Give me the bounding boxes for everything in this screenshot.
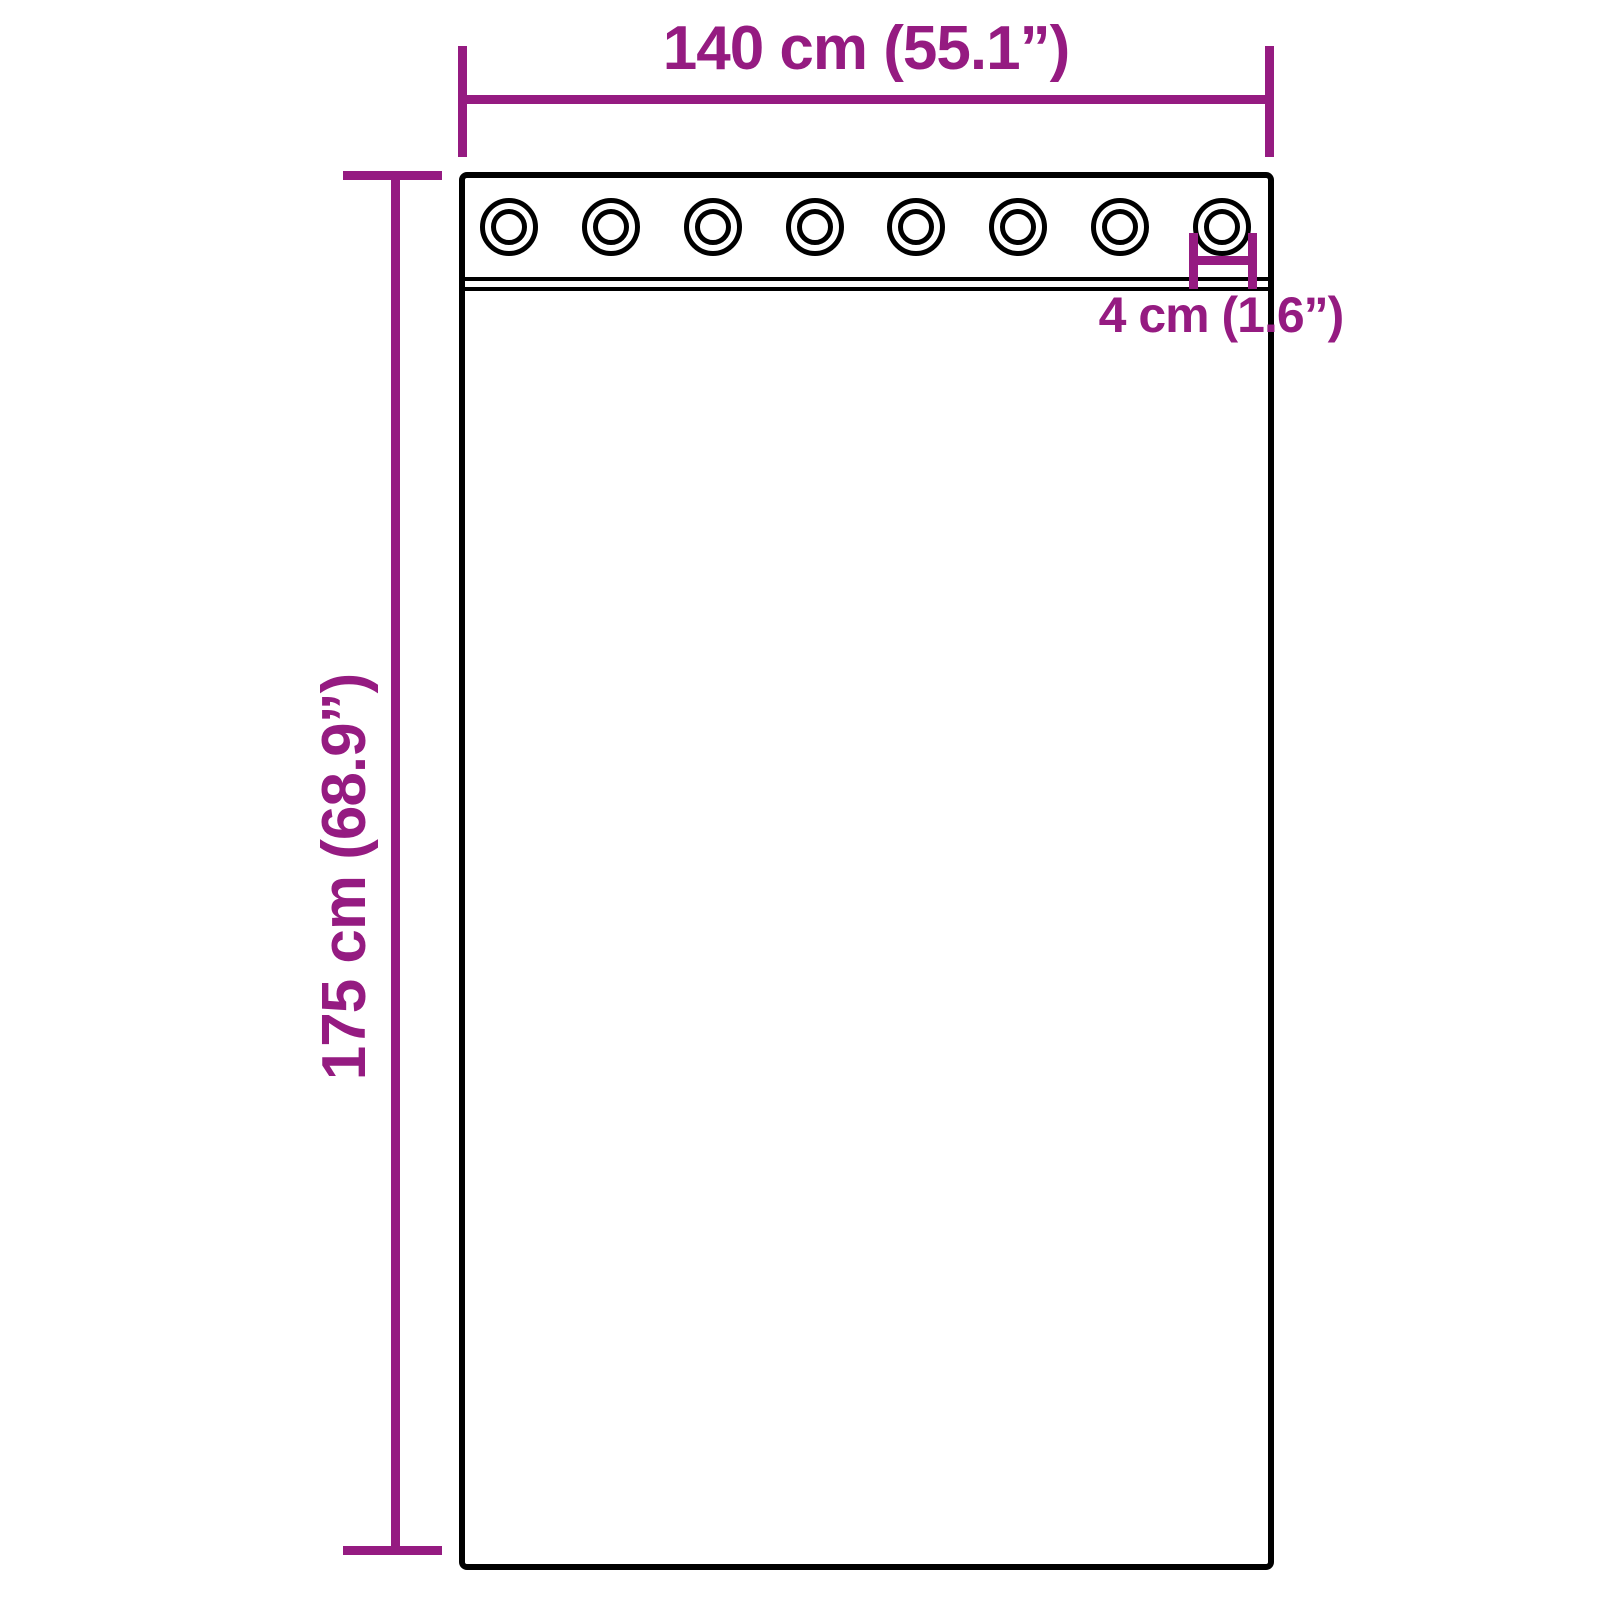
height-dimension-line [391, 175, 400, 1551]
grommet-icon [887, 198, 945, 256]
dimension-diagram: 140 cm (55.1”) 175 cm (68.9”) 4 cm (1.6”… [0, 0, 1600, 1600]
grommet-hole [898, 209, 934, 245]
header-seam-line-top [465, 277, 1268, 281]
grommet-hole [491, 209, 527, 245]
grommet-icon [480, 198, 538, 256]
width-dimension-label: 140 cm (55.1”) [462, 16, 1270, 82]
grommet-icon [989, 198, 1047, 256]
height-dimension-top-cap [343, 171, 442, 180]
grommet-icon [1091, 198, 1149, 256]
grommet-icon [786, 198, 844, 256]
grommet-dimension-line [1189, 256, 1257, 265]
grommet-row [480, 198, 1251, 256]
grommet-hole [1204, 209, 1240, 245]
grommet-hole [797, 209, 833, 245]
width-dimension-line [462, 95, 1270, 104]
grommet-hole [593, 209, 629, 245]
grommet-hole [695, 209, 731, 245]
grommet-hole [1000, 209, 1036, 245]
width-dimension-right-cap [1265, 46, 1274, 157]
grommet-icon [684, 198, 742, 256]
height-dimension-bottom-cap [343, 1546, 442, 1555]
grommet-hole [1102, 209, 1138, 245]
grommet-dimension-label: 4 cm (1.6”) [1021, 289, 1421, 341]
grommet-icon [582, 198, 640, 256]
grommet-icon [1193, 198, 1251, 256]
width-dimension-left-cap [458, 46, 467, 157]
curtain-panel [459, 172, 1274, 1570]
height-dimension-label: 175 cm (68.9”) [314, 627, 376, 1127]
